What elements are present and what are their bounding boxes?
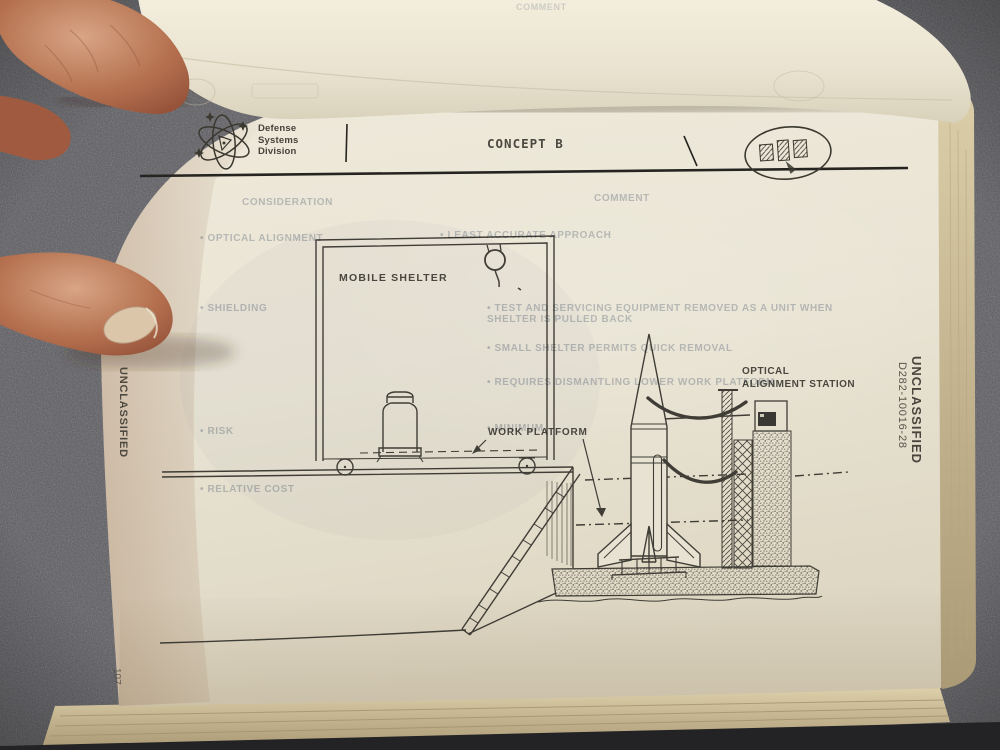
- station-column: [753, 431, 791, 566]
- book-right-edge: [938, 75, 976, 689]
- photo-of-report-page: Defense Systems Division CONCEPT B MOBIL…: [0, 0, 1000, 750]
- scene-drawing: [0, 0, 1000, 750]
- lattice-tower: [734, 440, 752, 568]
- curled-page: [138, 0, 971, 123]
